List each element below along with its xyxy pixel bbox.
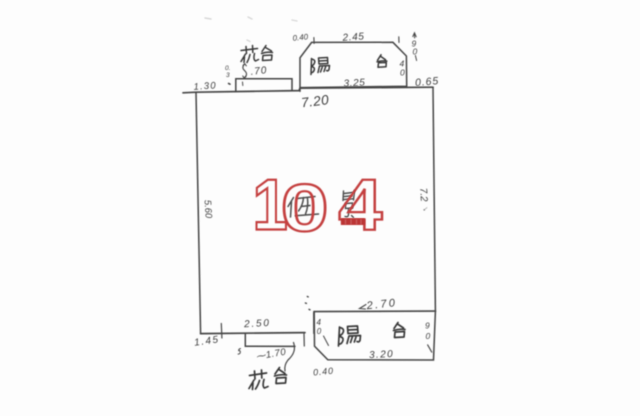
svg-text:5.60: 5.60 [202, 199, 214, 219]
svg-text:1.45: 1.45 [194, 334, 221, 348]
svg-text:9: 9 [425, 321, 430, 331]
svg-text:0: 0 [317, 327, 322, 336]
svg-text:0: 0 [281, 171, 329, 246]
svg-text:0: 0 [426, 331, 431, 341]
svg-text:7.20: 7.20 [300, 92, 330, 110]
svg-text:3.25: 3.25 [343, 77, 365, 89]
svg-text:2.50: 2.50 [243, 318, 271, 330]
svg-text:0: 0 [400, 68, 405, 78]
svg-text:4: 4 [317, 318, 322, 327]
svg-text:↓: ↓ [421, 204, 430, 213]
svg-text:.70: .70 [250, 65, 268, 78]
svg-text:0.40: 0.40 [313, 366, 335, 378]
svg-text:2.45: 2.45 [341, 31, 365, 44]
svg-text:0.65: 0.65 [415, 75, 440, 89]
svg-text:3: 3 [226, 72, 230, 79]
svg-text:0.40: 0.40 [292, 32, 309, 43]
svg-text:⁓1.70: ⁓1.70 [255, 347, 287, 363]
svg-text:4: 4 [338, 165, 382, 246]
svg-text:3.20: 3.20 [369, 349, 395, 361]
svg-text:7.2: 7.2 [417, 187, 429, 202]
svg-text:1.30: 1.30 [193, 80, 217, 93]
svg-text:0: 0 [413, 47, 418, 57]
svg-text:0.: 0. [225, 65, 231, 72]
svg-text:2.70: 2.70 [365, 297, 398, 312]
